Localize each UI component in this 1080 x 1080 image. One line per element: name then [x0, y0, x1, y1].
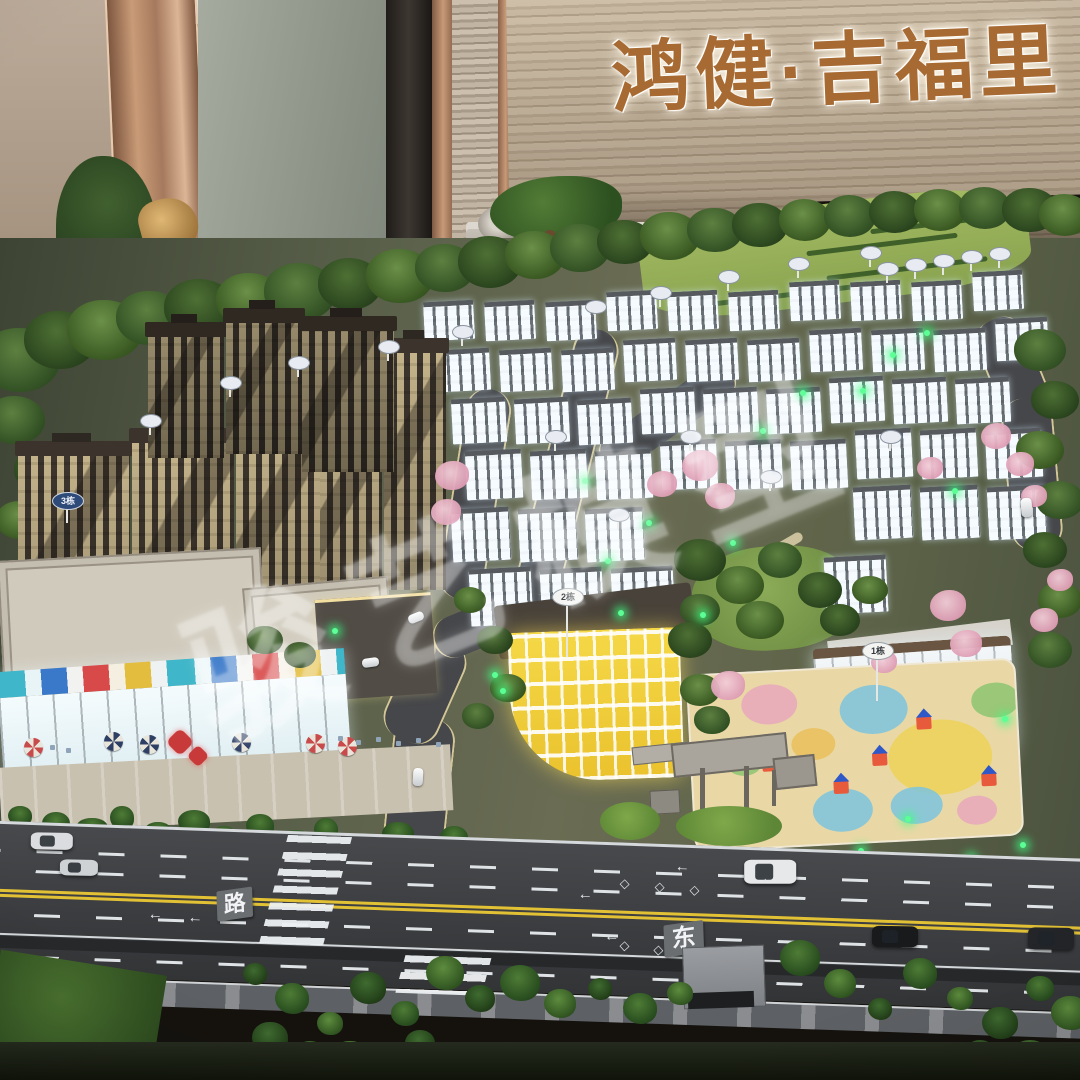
car-glass: [882, 930, 898, 944]
model-tree: [477, 626, 513, 655]
model-tree: [454, 587, 486, 613]
model-tree: [668, 622, 712, 657]
townhouse: [920, 484, 981, 540]
townhouse: [809, 327, 863, 372]
umbrella: [306, 734, 325, 753]
building-sign: [650, 286, 672, 300]
playground-circle: [740, 683, 798, 726]
led-light: [800, 390, 806, 396]
led-light: [1002, 716, 1008, 722]
model-tree: [462, 703, 494, 729]
townhouse: [892, 376, 948, 424]
cafe-table: [376, 737, 381, 742]
pink-blossom-tree: [431, 499, 461, 525]
model-tree: [852, 576, 888, 605]
play-equipment: [872, 752, 888, 766]
building-sign: [989, 247, 1011, 261]
townhouse: [530, 449, 588, 501]
sales-center-model-photo: 鸿健·吉福里 3栋 2栋 1栋 路 东 ↑↑↑↑↑↑◇◇◇◇◇ 骏艺: [0, 0, 1080, 1080]
car-glass: [40, 836, 54, 847]
townhouse: [451, 397, 507, 445]
building-sign: [608, 508, 630, 522]
led-light: [582, 478, 588, 484]
gate-post: [772, 770, 776, 806]
model-tree: [820, 604, 860, 636]
building-sign: [877, 262, 899, 276]
playground-circle: [970, 681, 1020, 718]
rooftop-structure: [403, 330, 425, 339]
playground-circle: [838, 683, 908, 735]
lane-arrow: ↑: [603, 930, 620, 947]
gate-canopy: [772, 754, 817, 790]
lane-arrow: ↑: [577, 888, 594, 905]
model-tree: [284, 642, 316, 668]
umbrella: [104, 732, 123, 751]
led-light: [730, 540, 736, 546]
rooftop-structure: [249, 300, 276, 309]
playground-circle: [890, 786, 944, 826]
building-sign: [452, 325, 474, 339]
model-tree: [1039, 194, 1080, 236]
pink-blossom-tree: [1047, 569, 1073, 591]
cafe-table: [416, 738, 421, 743]
led-light: [646, 520, 652, 526]
building-sign: [905, 258, 927, 272]
umbrella: [140, 735, 159, 754]
road-name-marking: 东: [663, 920, 704, 958]
building-sign-3: 3栋: [52, 492, 84, 510]
led-light: [492, 672, 498, 678]
car: [413, 768, 424, 786]
led-light: [924, 330, 930, 336]
pink-blossom-tree: [1006, 452, 1034, 476]
rooftop-structure: [52, 433, 91, 442]
townhouse: [465, 449, 523, 501]
pink-blossom-tree: [711, 671, 745, 700]
led-light: [952, 488, 958, 494]
townhouse: [955, 376, 1011, 424]
cafe-table: [356, 740, 361, 745]
cafe-table: [338, 736, 343, 741]
townhouse: [518, 507, 579, 563]
townhouse: [577, 397, 633, 445]
diamond-marking: ◇: [654, 880, 664, 893]
model-tree: [694, 706, 730, 735]
model-tree: [779, 199, 831, 241]
townhouse: [561, 348, 615, 393]
townhouse: [747, 338, 801, 383]
building-sign: [288, 356, 310, 370]
building-sign-1: 1栋: [862, 642, 894, 660]
townhouse: [911, 280, 963, 322]
townhouse: [640, 386, 696, 434]
gate-post: [700, 768, 705, 810]
tower-roof: [223, 308, 305, 323]
pink-blossom-tree: [435, 461, 469, 490]
lane-arrow: ↑: [147, 908, 164, 925]
play-equipment-roof: [916, 708, 932, 718]
lane-arrow: ↑: [187, 911, 204, 928]
playground-circle: [886, 717, 994, 797]
diamond-marking: ◇: [619, 939, 629, 952]
cafe-table: [396, 741, 401, 746]
pink-blossom-tree: [981, 423, 1011, 449]
pink-blossom-tree: [930, 590, 966, 621]
main-road: 路 东 ↑↑↑↑↑↑◇◇◇◇◇: [0, 806, 1080, 1064]
townhouse: [972, 270, 1024, 312]
led-light: [905, 816, 911, 822]
building-sign: [680, 430, 702, 444]
play-equipment-roof: [981, 765, 997, 775]
apartment-tower: [148, 336, 224, 458]
diamond-marking: ◇: [653, 943, 663, 956]
model-tree: [680, 594, 720, 626]
led-light: [618, 610, 624, 616]
playground-circle: [812, 787, 874, 833]
rooftop-structure: [171, 314, 198, 323]
townhouse: [484, 300, 536, 342]
model-tree: [247, 626, 283, 655]
pink-blossom-tree: [1030, 608, 1058, 632]
townhouse: [766, 387, 822, 435]
umbrella: [232, 733, 251, 752]
led-light: [332, 628, 338, 634]
townhouse: [933, 328, 987, 373]
lane-arrow: ↑: [760, 872, 777, 889]
townhouse: [829, 376, 885, 424]
led-light: [700, 612, 706, 618]
model-tree: [736, 601, 784, 639]
townhouse: [789, 280, 841, 322]
building-sign: [933, 254, 955, 268]
gate-post: [744, 766, 749, 808]
townhouse: [667, 290, 719, 332]
tower-roof: [145, 322, 227, 337]
building-sign: [545, 430, 567, 444]
lane-arrow: ↑: [674, 860, 691, 877]
car: [1020, 498, 1032, 518]
building-sign: [718, 270, 740, 284]
pink-blossom-tree: [950, 630, 982, 657]
car: [31, 832, 73, 850]
playground-circle: [956, 795, 997, 826]
led-light: [760, 428, 766, 434]
townhouse: [728, 290, 780, 332]
building-sign: [585, 300, 607, 314]
play-equipment: [981, 773, 997, 787]
cafe-table: [66, 748, 71, 753]
play-equipment-roof: [833, 772, 849, 782]
building-sign: [860, 246, 882, 260]
building-sign: [140, 414, 162, 428]
car-glass: [1038, 931, 1054, 945]
pink-blossom-tree: [705, 483, 735, 509]
model-tree: [1028, 632, 1072, 667]
diamond-marking: ◇: [689, 883, 699, 896]
model-tree: [1014, 329, 1066, 371]
building-sign: [220, 376, 242, 390]
model-tree: [716, 566, 764, 604]
tower-roof: [15, 441, 133, 456]
townhouse: [790, 438, 848, 490]
pink-blossom-tree: [917, 457, 943, 479]
tower-roof: [299, 316, 397, 331]
play-equipment-roof: [872, 744, 888, 754]
model-tree: [1023, 532, 1067, 567]
pink-blossom-tree: [647, 471, 677, 497]
led-light: [860, 388, 866, 394]
building-sign: [788, 257, 810, 271]
cafe-table: [50, 745, 55, 750]
townhouse: [595, 449, 653, 501]
car-glass: [68, 862, 81, 872]
townhouse: [703, 387, 759, 435]
diamond-marking: ◇: [619, 877, 629, 890]
model-tree: [798, 572, 842, 607]
play-equipment: [916, 716, 932, 730]
led-light: [500, 688, 506, 694]
townhouse: [850, 280, 902, 322]
townhouse: [499, 348, 553, 393]
crosswalk: [395, 955, 491, 996]
townhouse: [853, 484, 914, 540]
townhouse: [685, 338, 739, 383]
car: [872, 926, 918, 948]
led-light: [890, 352, 896, 358]
cafe-table: [436, 742, 441, 747]
road-name-marking: 路: [216, 887, 253, 922]
umbrella: [24, 738, 43, 757]
rooftop-structure: [330, 308, 362, 317]
building-sign: [760, 470, 782, 484]
model-tree: [758, 542, 802, 577]
townhouse: [871, 328, 925, 373]
building-sign: [378, 340, 400, 354]
play-equipment: [833, 780, 849, 794]
car: [1028, 927, 1074, 950]
model-tree: [1031, 381, 1079, 419]
townhouse: [623, 337, 677, 382]
building-sign: [880, 430, 902, 444]
building-sign: [961, 250, 983, 264]
car: [60, 859, 98, 876]
model-tree: [824, 195, 876, 237]
led-light: [605, 558, 611, 564]
pink-blossom-tree: [682, 450, 718, 481]
building-sign-2: 2栋: [552, 588, 584, 606]
